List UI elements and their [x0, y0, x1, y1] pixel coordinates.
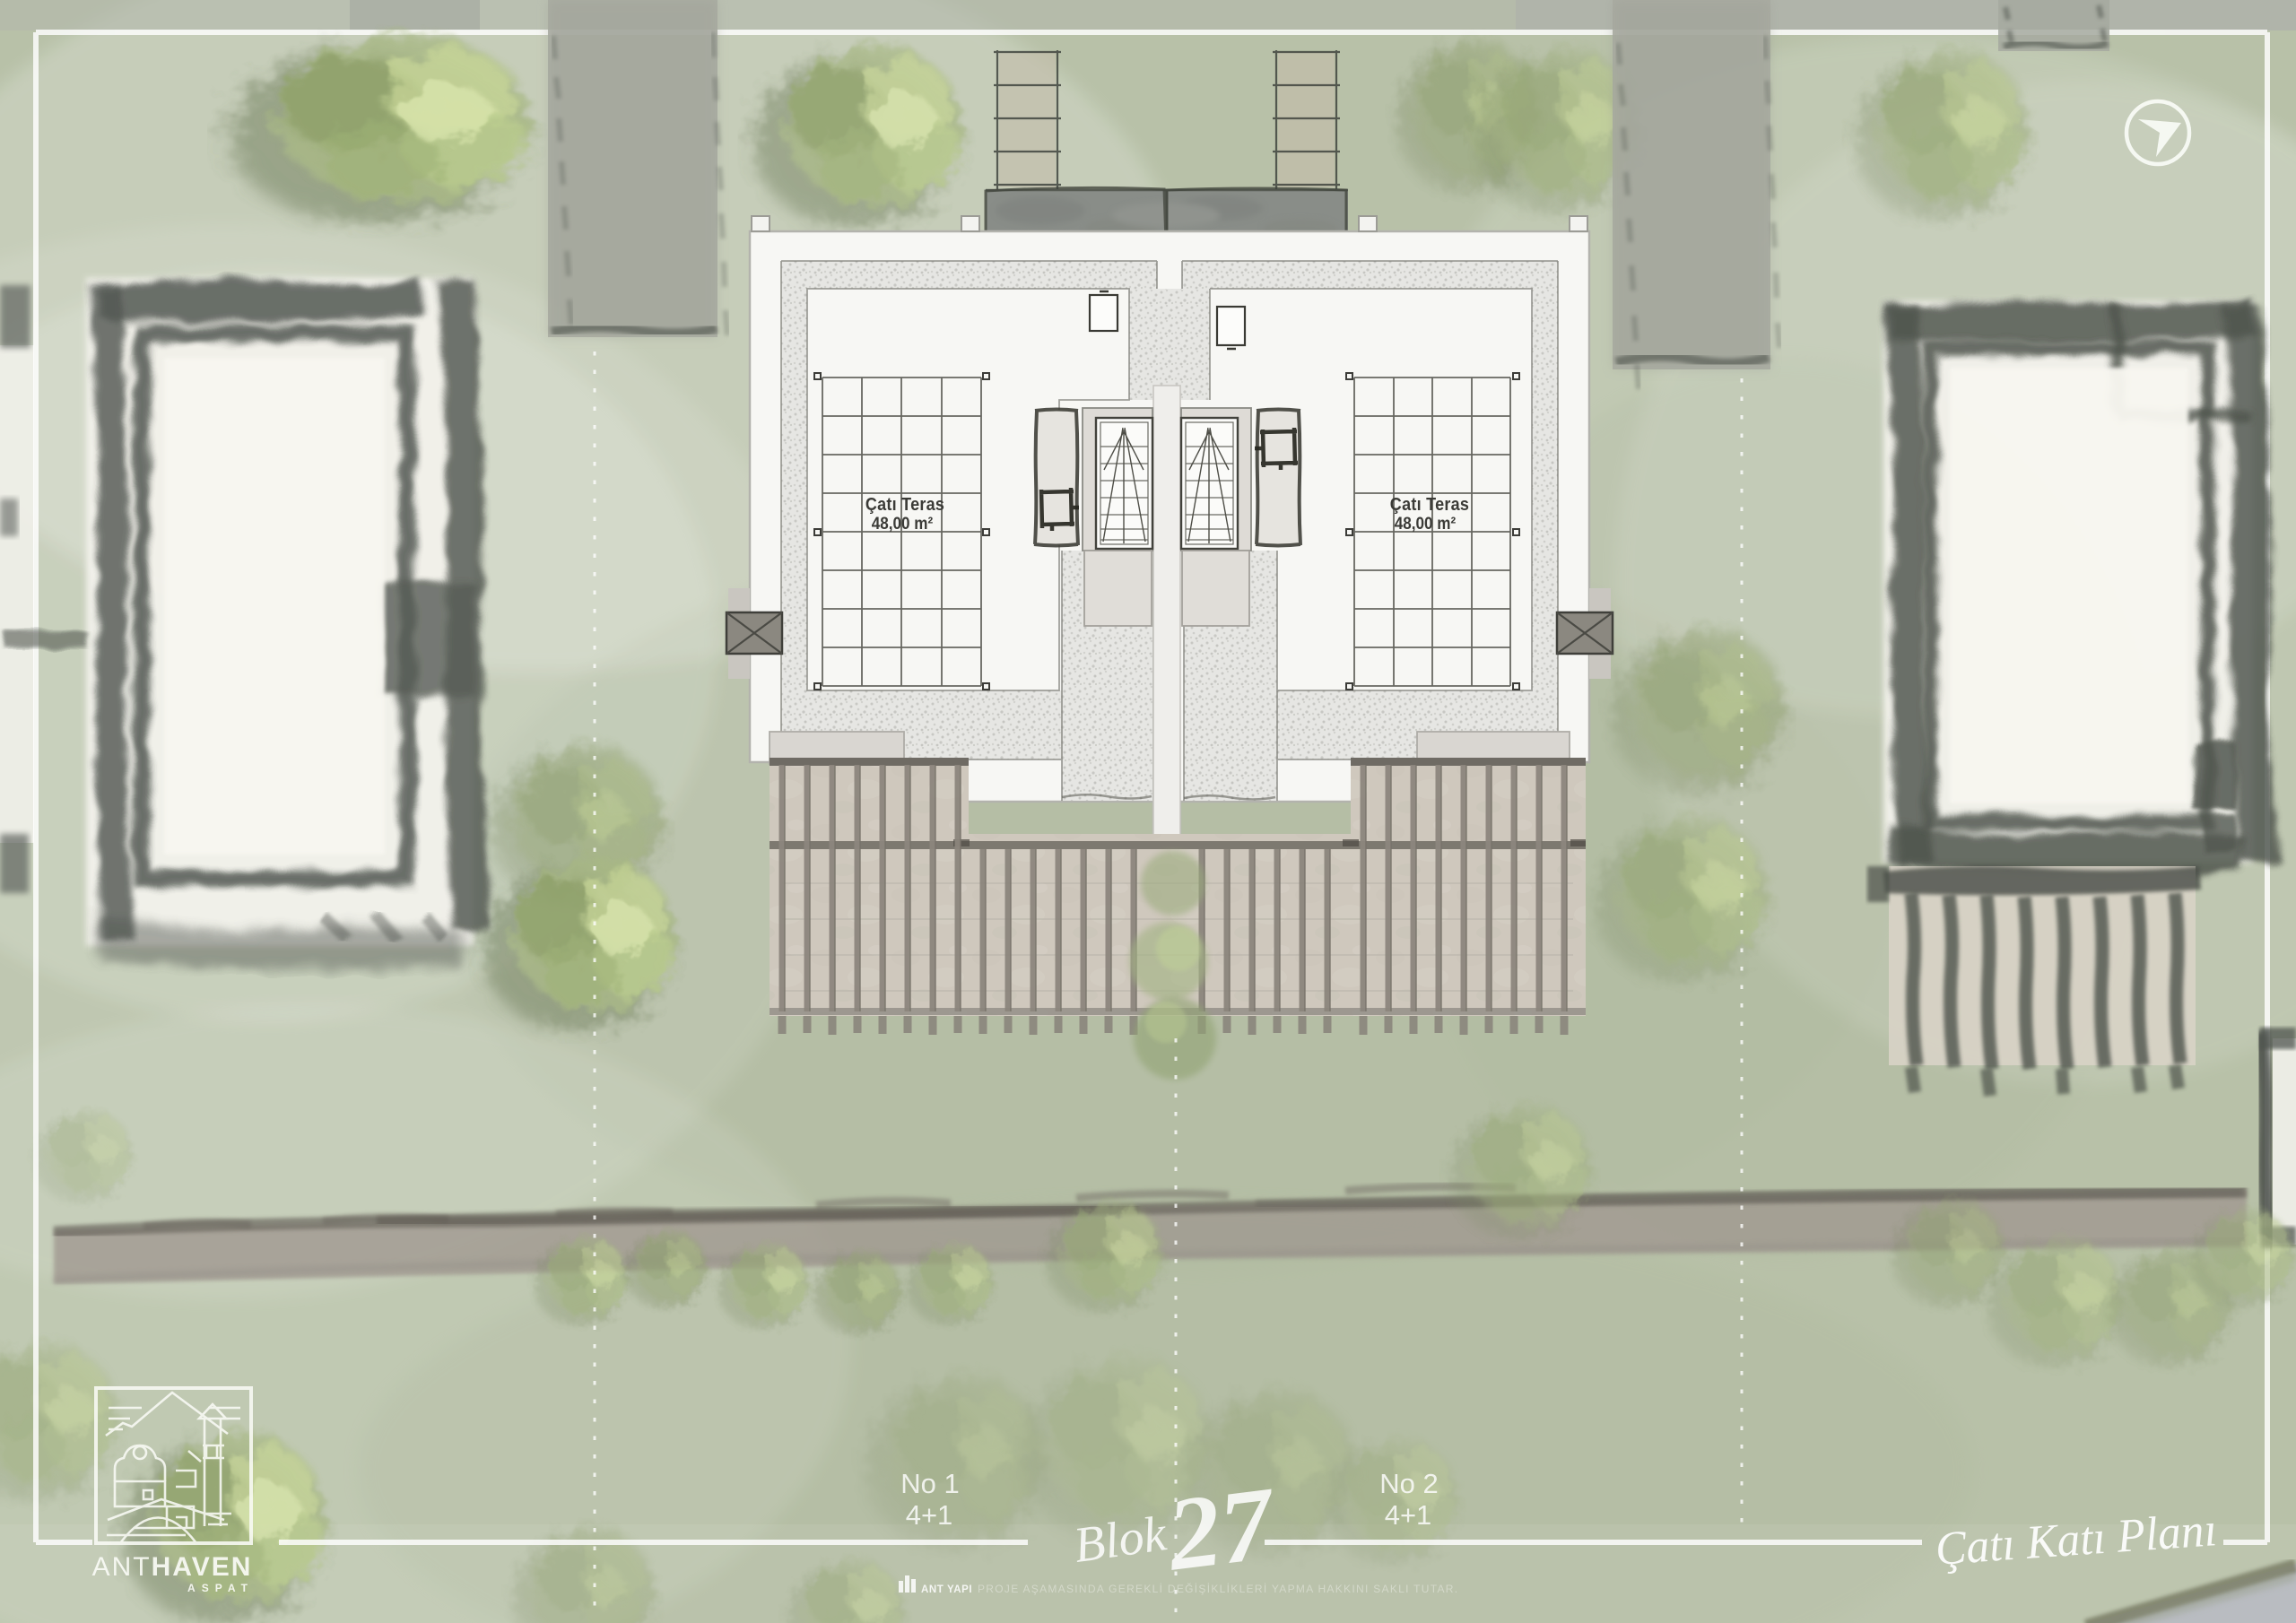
svg-text:4+1: 4+1 — [1385, 1499, 1432, 1531]
svg-text:No 1: No 1 — [900, 1468, 959, 1499]
svg-text:48,00 m²: 48,00 m² — [1395, 514, 1456, 533]
svg-text:ANTHAVEN: ANTHAVEN — [92, 1552, 253, 1582]
svg-text:No 2: No 2 — [1379, 1468, 1438, 1499]
svg-text:ASPAT: ASPAT — [187, 1582, 254, 1594]
svg-text:4+1: 4+1 — [906, 1499, 953, 1531]
svg-text:ANT YAPI: ANT YAPI — [921, 1584, 972, 1595]
svg-text:PROJE AŞAMASINDA GEREKLİ DEĞİŞ: PROJE AŞAMASINDA GEREKLİ DEĞİŞİKLİKLERİ … — [978, 1582, 1458, 1595]
svg-text:Çatı Teras: Çatı Teras — [865, 495, 944, 515]
svg-text:27: 27 — [1160, 1466, 1283, 1593]
svg-text:Çatı Teras: Çatı Teras — [1390, 495, 1469, 515]
svg-text:48,00 m²: 48,00 m² — [872, 514, 933, 533]
